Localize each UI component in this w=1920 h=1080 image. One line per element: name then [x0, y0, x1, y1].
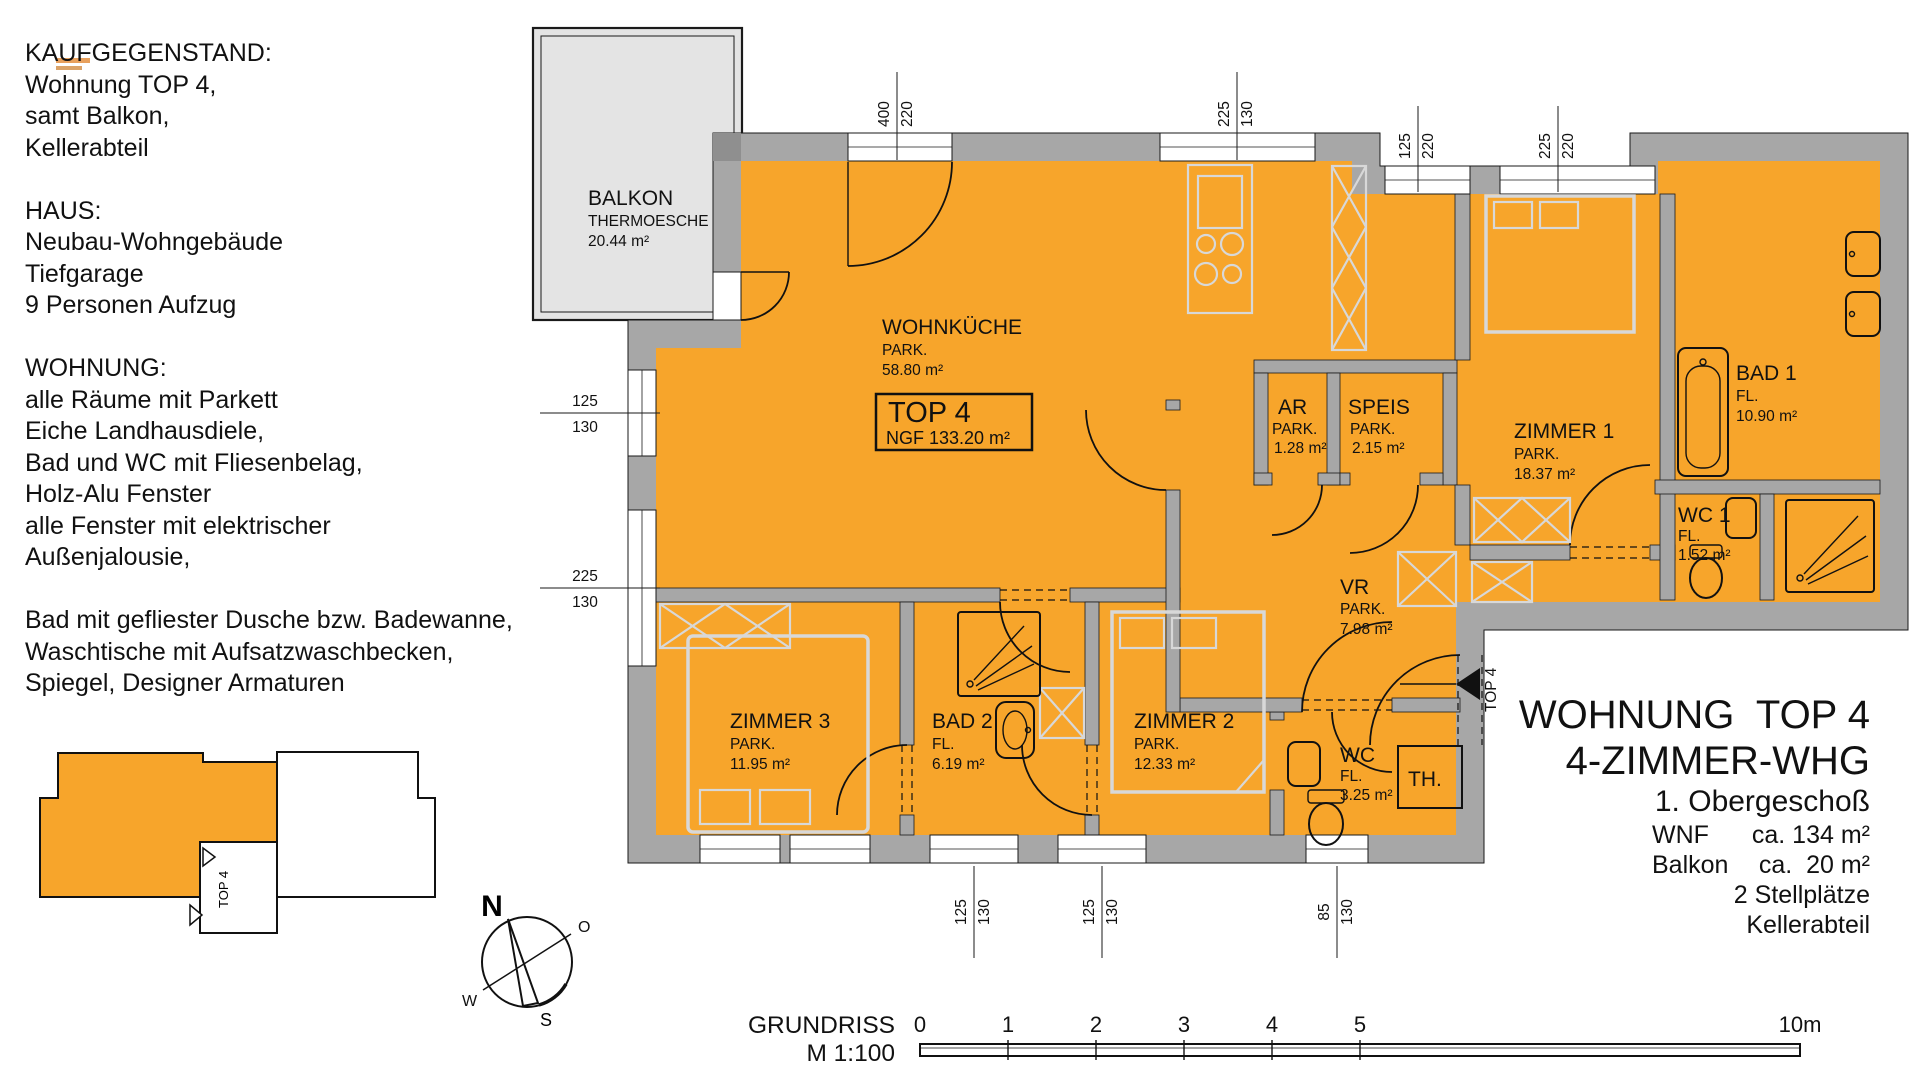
svg-text:225: 225	[572, 568, 598, 585]
svg-text:VR: VR	[1340, 576, 1369, 599]
text-line: 9 Personen Aufzug	[25, 290, 565, 322]
svg-text:10.90 m²: 10.90 m²	[1736, 408, 1797, 425]
svg-text:225: 225	[1537, 133, 1554, 159]
svg-text:ZIMMER 1: ZIMMER 1	[1514, 420, 1614, 443]
text-line: Bad mit gefliester Dusche bzw. Badewanne…	[25, 605, 565, 637]
scale-bar: 0 1 2 3 4 5 10m	[914, 1012, 1822, 1060]
compass-n: N	[481, 890, 503, 923]
text-line: Neubau-Wohngebäude	[25, 227, 565, 259]
svg-text:130: 130	[1239, 101, 1256, 127]
scale-tick-4: 4	[1266, 1012, 1278, 1037]
svg-text:20.44 m²: 20.44 m²	[588, 233, 649, 250]
svg-text:PARK.: PARK.	[1272, 421, 1317, 438]
svg-text:18.37 m²: 18.37 m²	[1514, 466, 1575, 483]
svg-text:125: 125	[572, 393, 598, 410]
dimensions-bottom: 125 130 125 130 85 130	[953, 866, 1356, 958]
text-line: Waschtische mit Aufsatzwaschbecken,	[25, 637, 565, 669]
svg-text:PARK.: PARK.	[1350, 421, 1395, 438]
compass-s: S	[540, 1010, 552, 1030]
svg-text:125: 125	[1081, 899, 1098, 925]
wnf-label: WNF	[1652, 820, 1709, 850]
svg-text:12.33 m²: 12.33 m²	[1134, 756, 1195, 773]
text-line: Holz-Alu Fenster	[25, 479, 565, 511]
svg-text:130: 130	[1339, 899, 1356, 925]
text-line	[25, 164, 565, 196]
svg-text:BAD 1: BAD 1	[1736, 362, 1797, 385]
keyplan-unit-label: TOP 4	[216, 871, 231, 908]
scale-end-label: 10m	[1779, 1012, 1822, 1037]
compass-w: W	[462, 993, 478, 1010]
text-line: WOHNUNG:	[25, 353, 565, 385]
svg-text:225: 225	[1216, 101, 1233, 127]
svg-text:125: 125	[1397, 133, 1414, 159]
svg-text:FL.: FL.	[1736, 388, 1758, 405]
keyplan-building	[277, 752, 435, 897]
drawing-scale: M 1:100	[660, 1040, 895, 1068]
svg-text:400: 400	[876, 101, 893, 127]
scale-tick-2: 2	[1090, 1012, 1102, 1037]
text-line	[25, 574, 565, 606]
svg-text:130: 130	[1104, 899, 1121, 925]
svg-text:1.52 m²: 1.52 m²	[1678, 547, 1731, 564]
unit-info-row-wnf: WNF ca. 134 m²	[1652, 820, 1870, 850]
svg-text:130: 130	[976, 899, 993, 925]
text-line: Wohnung TOP 4,	[25, 70, 565, 102]
svg-text:WC 1: WC 1	[1678, 504, 1731, 527]
unit-info-subtitle: 4-ZIMMER-WHG	[1430, 738, 1870, 784]
drawing-title-block: GRUNDRISS M 1:100	[660, 1012, 895, 1068]
svg-text:PARK.: PARK.	[1514, 446, 1559, 463]
svg-text:BALKON: BALKON	[588, 187, 673, 210]
text-line: samt Balkon,	[25, 101, 565, 133]
svg-text:3.25 m²: 3.25 m²	[1340, 787, 1393, 804]
text-line: alle Fenster mit elektrischer	[25, 511, 565, 543]
svg-text:FL.: FL.	[1678, 528, 1700, 545]
svg-text:130: 130	[572, 419, 598, 436]
wall-corner	[713, 133, 741, 161]
svg-text:6.19 m²: 6.19 m²	[932, 756, 985, 773]
svg-text:PARK.: PARK.	[882, 342, 927, 359]
svg-text:BAD 2: BAD 2	[932, 710, 993, 733]
svg-text:THERMOESCHE: THERMOESCHE	[588, 213, 709, 230]
svg-text:AR: AR	[1278, 396, 1307, 419]
balkon-label: Balkon	[1652, 850, 1728, 880]
text-line: Spiegel, Designer Armaturen	[25, 668, 565, 700]
svg-text:11.95 m²: 11.95 m²	[730, 756, 790, 773]
svg-text:220: 220	[899, 101, 916, 127]
compass-rose: N O W S	[462, 890, 590, 1030]
scale-tick-5: 5	[1354, 1012, 1366, 1037]
svg-text:7.98 m²: 7.98 m²	[1340, 621, 1393, 638]
scale-tick-3: 3	[1178, 1012, 1190, 1037]
svg-text:WC: WC	[1340, 744, 1375, 767]
balkon-value: ca. 20 m²	[1759, 850, 1870, 880]
sale-description-panel: KAUFGEGENSTAND: Wohnung TOP 4, samt Balk…	[25, 38, 565, 700]
scale-tick-1: 1	[1002, 1012, 1014, 1037]
unit-info-title: WOHNUNG TOP 4	[1430, 692, 1870, 738]
text-line: Eiche Landhausdiele,	[25, 416, 565, 448]
svg-text:220: 220	[1420, 133, 1437, 159]
unit-info-row-balkon: Balkon ca. 20 m²	[1652, 850, 1870, 880]
text-line: alle Räume mit Parkett	[25, 385, 565, 417]
svg-text:2.15 m²: 2.15 m²	[1352, 440, 1405, 457]
unit-title: TOP 4	[888, 397, 971, 429]
unit-info-panel: WOHNUNG TOP 4 4-ZIMMER-WHG 1. Obergescho…	[1430, 692, 1870, 940]
text-line: Kellerabteil	[25, 133, 565, 165]
svg-text:PARK.: PARK.	[1134, 736, 1179, 753]
svg-text:85: 85	[1316, 903, 1333, 920]
scale-tick-0: 0	[914, 1012, 926, 1037]
text-line: Bad und WC mit Fliesenbelag,	[25, 448, 565, 480]
svg-text:125: 125	[953, 899, 970, 925]
svg-text:PARK.: PARK.	[1340, 601, 1385, 618]
unit-info-floor: 1. Obergeschoß	[1430, 784, 1870, 820]
text-line: Tiefgarage	[25, 259, 565, 291]
svg-text:1.28 m²: 1.28 m²	[1274, 440, 1327, 457]
svg-text:FL.: FL.	[932, 736, 954, 753]
wnf-value: ca. 134 m²	[1752, 820, 1870, 850]
svg-text:FL.: FL.	[1340, 768, 1362, 785]
unit-info-cellar: Kellerabteil	[1430, 910, 1870, 940]
keyplan: TOP 4	[40, 752, 435, 933]
text-line: KAUFGEGENSTAND:	[25, 38, 565, 70]
svg-text:58.80 m²: 58.80 m²	[882, 362, 943, 379]
text-line: Außenjalousie,	[25, 542, 565, 574]
compass-e: O	[578, 919, 590, 936]
svg-text:WOHNKÜCHE: WOHNKÜCHE	[882, 316, 1022, 339]
text-line: HAUS:	[25, 196, 565, 228]
svg-text:SPEIS: SPEIS	[1348, 396, 1410, 419]
svg-text:PARK.: PARK.	[730, 736, 775, 753]
svg-text:130: 130	[572, 594, 598, 611]
text-line	[25, 322, 565, 354]
unit-info-parking: 2 Stellplätze	[1430, 880, 1870, 910]
svg-text:220: 220	[1560, 133, 1577, 159]
svg-text:ZIMMER 2: ZIMMER 2	[1134, 710, 1234, 733]
svg-text:ZIMMER 3: ZIMMER 3	[730, 710, 830, 733]
unit-ngf: NGF 133.20 m²	[886, 428, 1010, 448]
drawing-title: GRUNDRISS	[660, 1012, 895, 1040]
